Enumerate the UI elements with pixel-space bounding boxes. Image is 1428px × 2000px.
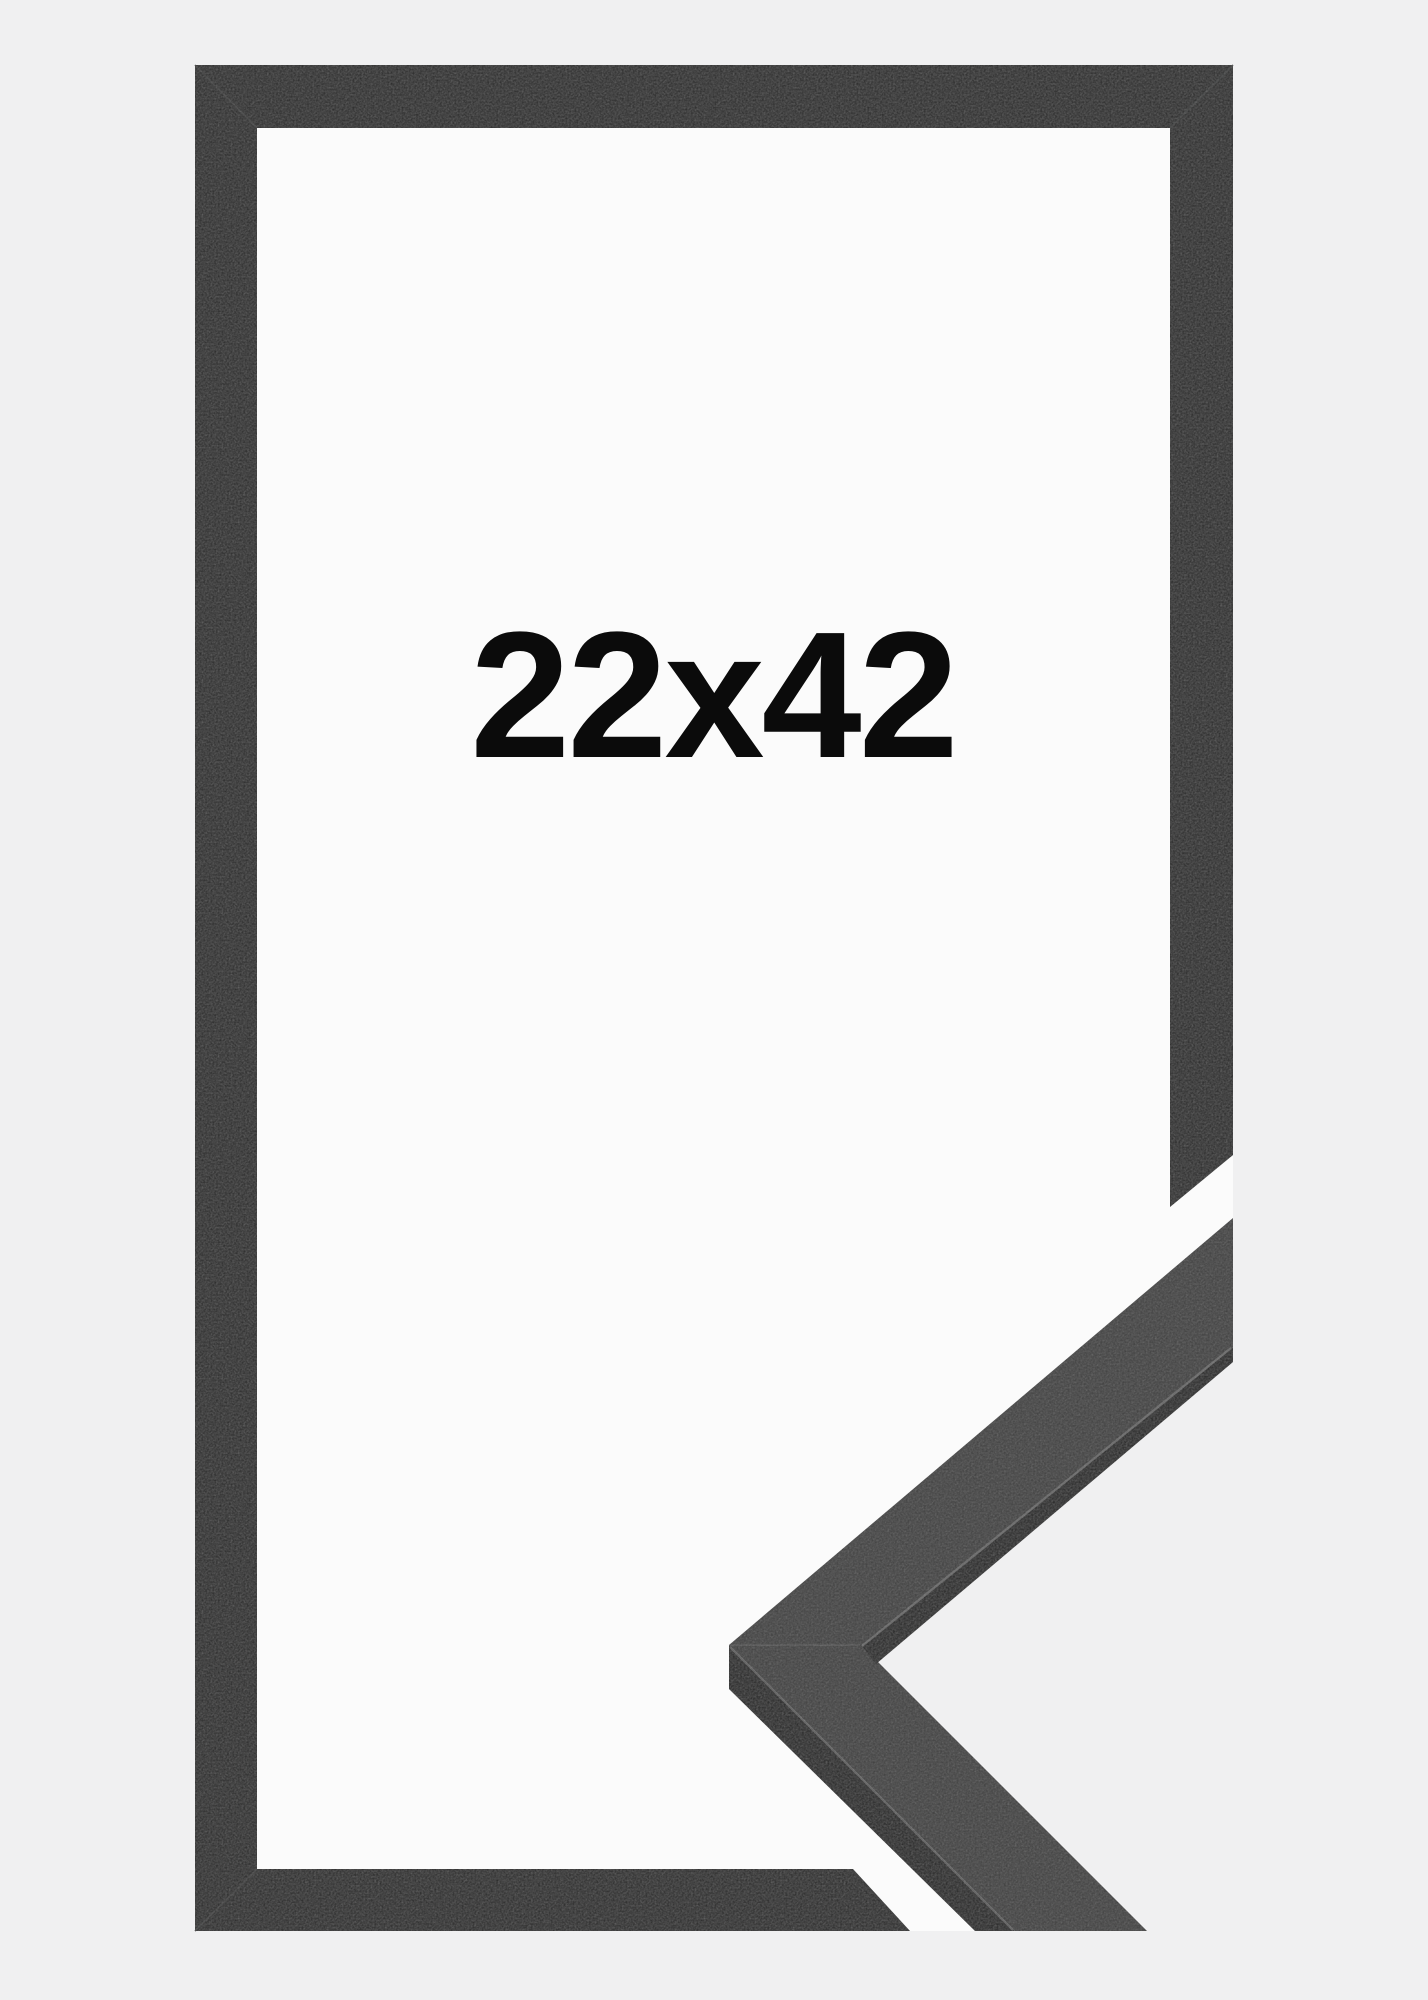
frame-size-label: 22x42 [470, 595, 956, 796]
frame-product-illustration: 22x42 [0, 0, 1428, 2000]
product-photo: 22x42 [0, 0, 1428, 2000]
